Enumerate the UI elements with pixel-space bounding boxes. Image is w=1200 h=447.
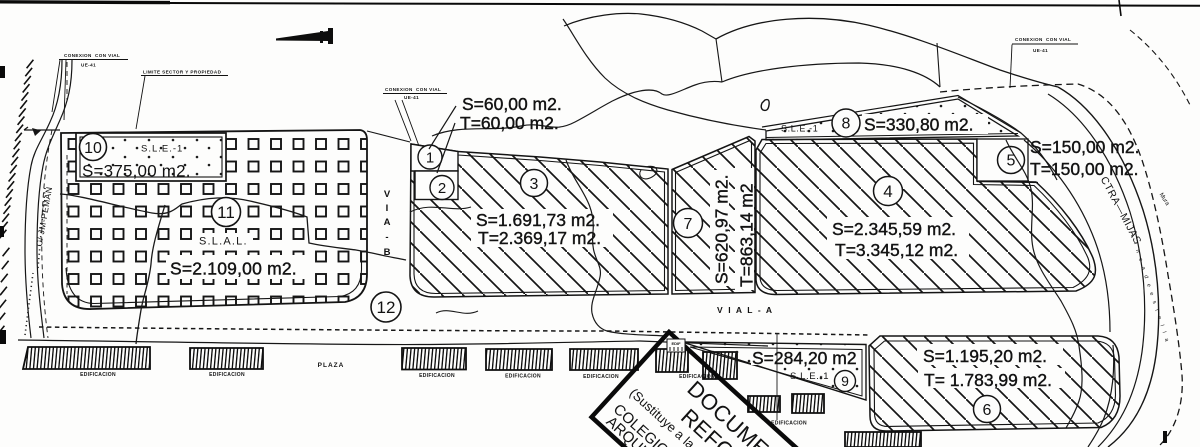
svg-text:8: 8 [842,116,851,133]
svg-text:-: - [385,232,388,243]
svg-text:I: I [386,203,389,214]
svg-text:T=150,00 m2.: T=150,00 m2. [1030,159,1138,179]
svg-text:S.L.A.L.: S.L.A.L. [199,236,248,248]
svg-text:1: 1 [426,150,434,167]
svg-text:UE-41: UE-41 [81,63,96,68]
svg-text:6: 6 [983,402,992,419]
svg-text:EDIFICACION: EDIFICACION [419,373,455,379]
svg-text:CONEXION CON VIAL: CONEXION CON VIAL [1015,37,1071,42]
svg-text:B: B [384,247,391,258]
svg-text:UE-41: UE-41 [1033,48,1048,53]
svg-text:S.L.E.-1: S.L.E.-1 [141,144,183,155]
svg-text:S.L.E.-1: S.L.E.-1 [781,124,818,134]
svg-text:T=863,14 m2: T=863,14 m2 [737,183,757,287]
svg-text:S=330,80 m2.: S=330,80 m2. [864,115,973,135]
svg-text:EDIFICACION: EDIFICACION [771,421,807,427]
svg-text:EDIFICACION: EDIFICACION [505,374,541,380]
svg-text:4: 4 [883,182,892,201]
svg-text:3: 3 [530,176,539,193]
svg-text:EDIFICACION: EDIFICACION [80,372,116,378]
svg-text:CONEXION CON VIAL: CONEXION CON VIAL [385,87,441,92]
svg-text:EDIFICACION: EDIFICACION [583,374,619,380]
svg-text:9: 9 [841,373,849,389]
svg-text:EDIFICACION: EDIFICACION [209,372,245,378]
svg-text:S=1.195,20 m2.: S=1.195,20 m2. [923,346,1047,366]
svg-text:T=2.369,17 m2.: T=2.369,17 m2. [478,228,601,248]
svg-text:S=1.691,73 m2.: S=1.691,73 m2. [476,210,600,230]
svg-text:LIMITE SECTOR Y PROPIEDAD: LIMITE SECTOR Y PROPIEDAD [143,70,222,75]
svg-text:CONEXION CON VIAL: CONEXION CON VIAL [64,53,120,58]
svg-text:S=284,20 m2: S=284,20 m2 [752,348,857,368]
svg-text:S=60,00 m2.: S=60,00 m2. [462,94,562,114]
svg-text:10: 10 [84,140,102,157]
svg-text:V: V [384,189,391,200]
svg-text:S=620,97 m2.: S=620,97 m2. [712,175,732,284]
svg-text:T= 1.783,99 m2.: T= 1.783,99 m2. [924,370,1052,390]
svg-text:S=375,00 m2.: S=375,00 m2. [82,162,191,181]
svg-text:PLAZA: PLAZA [318,362,345,369]
svg-text:11: 11 [217,203,235,222]
svg-text:S=150,00 m2.: S=150,00 m2. [1030,137,1139,157]
svg-text:T=60,00 m2.: T=60,00 m2. [460,113,559,133]
svg-text:2: 2 [438,180,446,197]
svg-text:UE-41: UE-41 [404,95,419,100]
svg-text:12: 12 [377,298,396,317]
svg-text:T=3.345,12 m2.: T=3.345,12 m2. [835,240,958,260]
svg-text:EDIF: EDIF [671,341,681,346]
svg-text:S=2.109,00 m2.: S=2.109,00 m2. [170,259,297,279]
svg-text:S.L.E.-1: S.L.E.-1 [790,371,829,382]
svg-text:7: 7 [684,216,693,233]
svg-text:S=2.345,59 m2.: S=2.345,59 m2. [832,219,956,239]
svg-text:V I A L - A: V I A L - A [717,305,774,315]
svg-text:A: A [384,217,391,228]
